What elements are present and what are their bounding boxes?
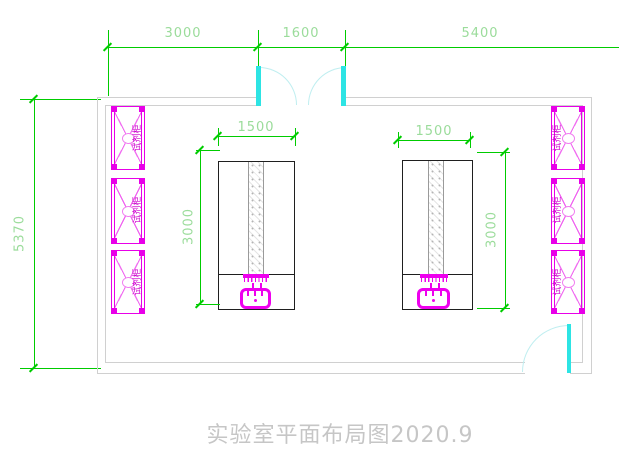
dimension-label-3000: 3000 <box>143 26 223 41</box>
dimension-label-5370: 5370 <box>13 194 28 274</box>
bench-depth-dimension-line <box>505 152 506 308</box>
extension-line-door-left <box>258 30 259 68</box>
dimension-label-5400: 5400 <box>440 26 520 41</box>
left-dimension-line <box>34 99 35 369</box>
single-door-leaf <box>567 324 571 373</box>
cabinet-label: 试剂柜 <box>552 190 564 230</box>
reagent-cabinet: 试剂柜 <box>111 250 145 314</box>
reagent-cabinet: 试剂柜 <box>551 178 585 244</box>
sink-tap-mark <box>247 290 249 296</box>
top-dimension-line <box>108 47 619 48</box>
sink-tap-mark <box>254 290 256 296</box>
double-door-leaf-right <box>341 66 346 106</box>
bench-width-dimension-line <box>218 136 295 137</box>
bench-service-duct <box>248 162 264 274</box>
extension-line-door-right <box>345 30 346 68</box>
reagent-cabinet: 试剂柜 <box>551 106 585 170</box>
double-door-leaf-left <box>256 66 261 106</box>
dimension-label-3000: 3000 <box>182 187 197 267</box>
dimension-label-3000: 3000 <box>485 190 500 270</box>
sink-tap-mark <box>440 290 442 296</box>
reagent-cabinet: 试剂柜 <box>551 250 585 314</box>
sink-grill-icon <box>244 278 268 282</box>
drawing-title: 实验室平面布局图2020.9 <box>170 417 510 449</box>
cabinet-label: 试剂柜 <box>552 118 564 158</box>
reagent-cabinet: 试剂柜 <box>111 106 145 170</box>
sink-tap-mark <box>425 290 427 296</box>
dimension-label-1500: 1500 <box>216 120 296 135</box>
cabinet-label: 试剂柜 <box>132 118 144 158</box>
cabinet-label: 试剂柜 <box>132 190 144 230</box>
door-swing-arc <box>259 67 297 105</box>
dimension-label-1500: 1500 <box>394 124 474 139</box>
sink-tap-mark <box>432 290 434 296</box>
dimension-label-1600: 1600 <box>261 26 341 41</box>
sink-drain-icon <box>254 299 257 302</box>
cabinet-label: 试剂柜 <box>552 262 564 302</box>
extension-line-left <box>108 30 109 96</box>
sink-drain-icon <box>432 299 435 302</box>
room-inner-wall <box>105 105 583 363</box>
floor-plan-canvas: 3000 1600 5400 5370 试剂柜 试剂柜 试剂柜 试剂柜 <box>0 0 619 469</box>
bench-depth-dimension-line <box>200 150 201 304</box>
sink-tap-mark <box>261 290 263 296</box>
bench-service-duct <box>428 161 444 274</box>
bench-width-dimension-line <box>398 140 470 141</box>
cabinet-label: 试剂柜 <box>132 262 144 302</box>
reagent-cabinet: 试剂柜 <box>111 178 145 244</box>
sink-grill-icon <box>421 278 447 282</box>
